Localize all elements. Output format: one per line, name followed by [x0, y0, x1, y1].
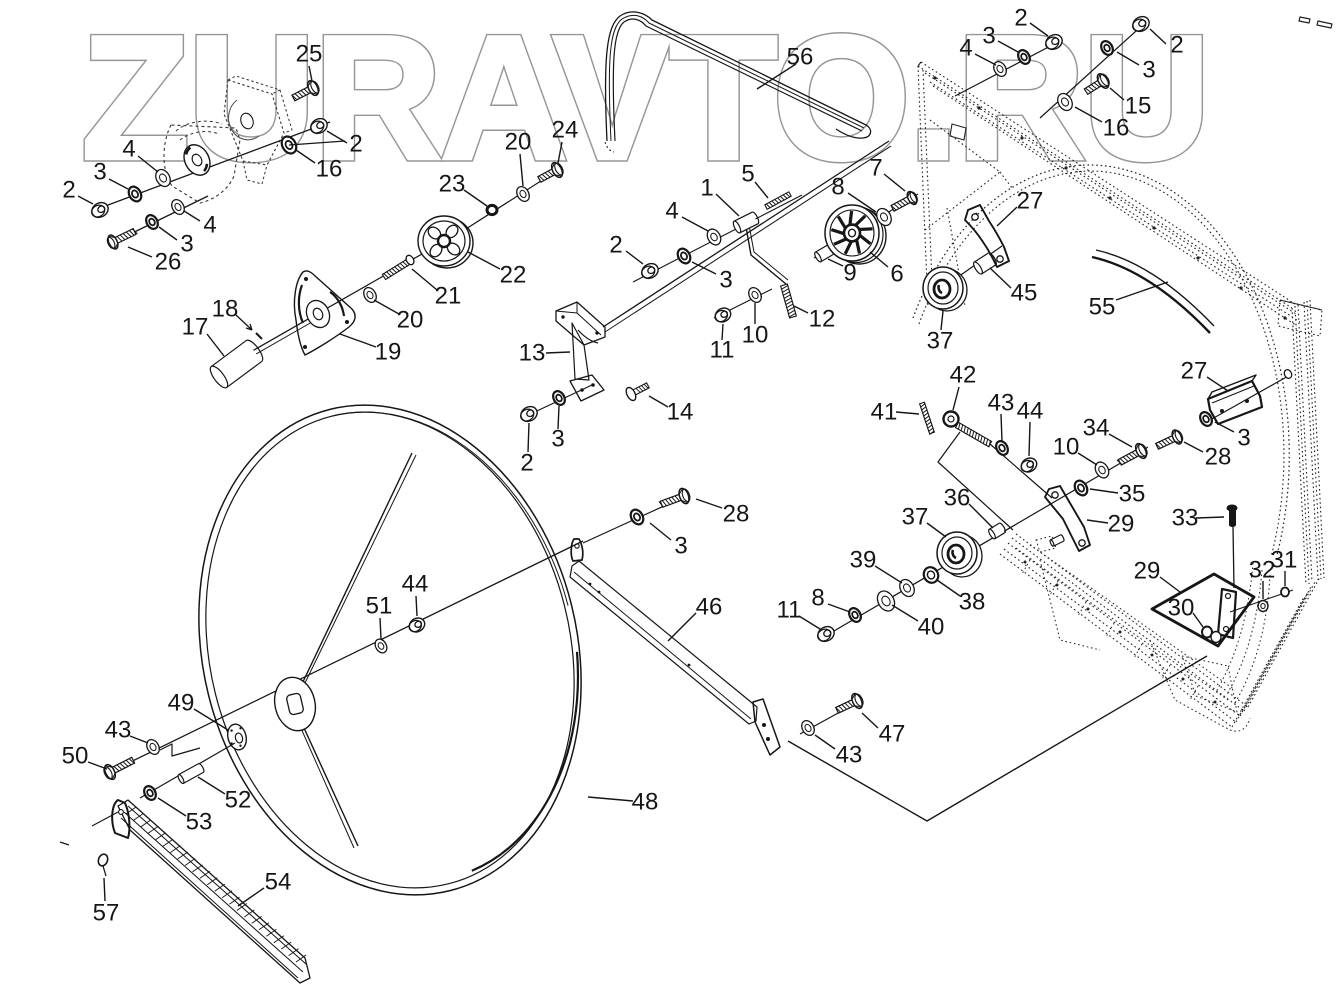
svg-text:4: 4: [665, 198, 678, 225]
svg-text:26: 26: [155, 249, 182, 276]
svg-text:43: 43: [105, 717, 132, 744]
svg-text:4: 4: [203, 212, 216, 239]
svg-text:44: 44: [1017, 398, 1044, 425]
svg-text:8: 8: [811, 585, 824, 612]
svg-text:27: 27: [1181, 358, 1208, 385]
svg-text:17: 17: [182, 314, 209, 341]
svg-text:54: 54: [265, 869, 292, 896]
svg-text:36: 36: [944, 485, 971, 512]
svg-text:19: 19: [375, 339, 402, 366]
svg-text:53: 53: [186, 809, 213, 836]
svg-text:30: 30: [1168, 595, 1195, 622]
svg-text:3: 3: [93, 159, 106, 186]
svg-text:2: 2: [1014, 5, 1027, 32]
svg-text:51: 51: [366, 593, 393, 620]
svg-text:43: 43: [988, 390, 1015, 417]
svg-text:41: 41: [871, 399, 898, 426]
svg-text:5: 5: [741, 161, 754, 188]
svg-text:42: 42: [950, 362, 977, 389]
svg-text:ZURAVTO.RU: ZURAVTO.RU: [82, 1, 1212, 196]
svg-text:55: 55: [1089, 294, 1116, 321]
svg-text:50: 50: [62, 743, 89, 770]
svg-text:3: 3: [982, 23, 995, 50]
svg-text:34: 34: [1083, 415, 1110, 442]
svg-text:39: 39: [850, 547, 877, 574]
svg-text:9: 9: [843, 260, 856, 287]
svg-text:29: 29: [1134, 558, 1161, 585]
svg-text:49: 49: [168, 690, 195, 717]
svg-text:10: 10: [742, 322, 769, 349]
svg-text:14: 14: [667, 399, 694, 426]
svg-text:57: 57: [93, 900, 120, 927]
svg-text:12: 12: [809, 306, 836, 333]
svg-text:3: 3: [551, 426, 564, 453]
svg-text:46: 46: [696, 594, 723, 621]
svg-text:33: 33: [1172, 505, 1199, 532]
svg-text:56: 56: [787, 44, 814, 71]
svg-text:45: 45: [1011, 280, 1038, 307]
svg-text:18: 18: [212, 296, 239, 323]
svg-text:28: 28: [1205, 444, 1232, 471]
svg-text:8: 8: [831, 174, 844, 201]
svg-text:29: 29: [1108, 511, 1135, 538]
svg-text:11: 11: [777, 597, 802, 624]
svg-text:37: 37: [902, 504, 929, 531]
svg-text:40: 40: [918, 614, 945, 641]
svg-text:4: 4: [959, 35, 972, 62]
svg-text:22: 22: [500, 262, 527, 289]
svg-text:48: 48: [632, 789, 659, 816]
svg-text:43: 43: [836, 742, 863, 769]
svg-text:3: 3: [180, 231, 193, 258]
svg-text:52: 52: [225, 787, 252, 814]
svg-text:3: 3: [1237, 425, 1250, 452]
svg-text:31: 31: [1271, 547, 1298, 574]
svg-text:2: 2: [349, 131, 362, 158]
svg-text:27: 27: [1017, 188, 1044, 215]
svg-text:23: 23: [439, 171, 466, 198]
svg-text:7: 7: [869, 155, 882, 182]
svg-text:6: 6: [890, 261, 903, 288]
svg-text:47: 47: [879, 721, 906, 748]
svg-text:21: 21: [435, 283, 462, 310]
svg-text:16: 16: [1103, 115, 1130, 142]
svg-text:38: 38: [959, 589, 986, 616]
svg-text:25: 25: [296, 41, 323, 68]
svg-text:10: 10: [1053, 434, 1080, 461]
svg-text:11: 11: [710, 337, 735, 364]
svg-text:20: 20: [397, 307, 424, 334]
svg-text:2: 2: [609, 232, 622, 259]
svg-text:1: 1: [700, 175, 713, 202]
svg-text:3: 3: [1142, 57, 1155, 84]
svg-text:24: 24: [552, 117, 579, 144]
svg-text:2: 2: [62, 177, 75, 204]
svg-text:3: 3: [674, 533, 687, 560]
svg-text:44: 44: [402, 571, 429, 598]
svg-text:2: 2: [520, 450, 533, 477]
svg-text:37: 37: [927, 328, 954, 355]
svg-text:2: 2: [1170, 32, 1183, 59]
svg-text:16: 16: [316, 156, 343, 183]
svg-text:28: 28: [723, 501, 750, 528]
svg-text:3: 3: [719, 267, 732, 294]
svg-text:20: 20: [505, 129, 532, 156]
svg-text:35: 35: [1119, 481, 1146, 508]
svg-text:4: 4: [122, 136, 135, 163]
svg-text:13: 13: [519, 340, 546, 367]
